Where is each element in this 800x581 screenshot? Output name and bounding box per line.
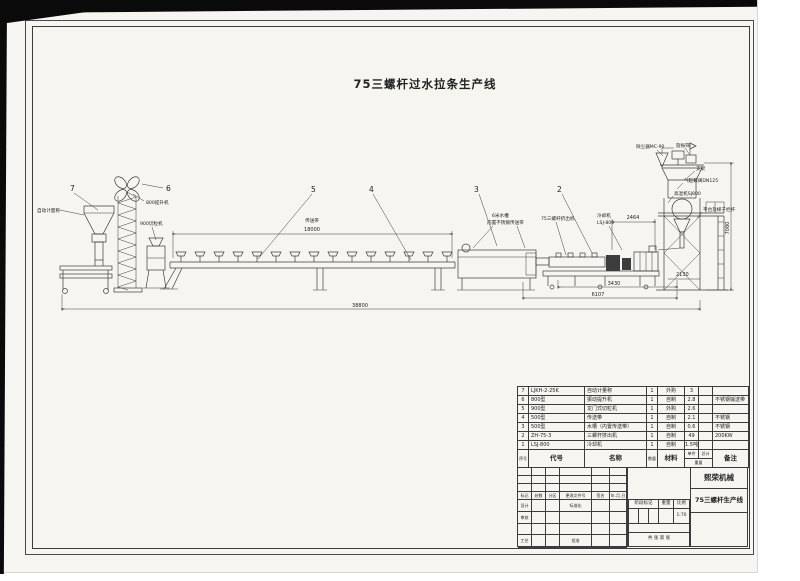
water-tank-figure (457, 244, 536, 290)
svg-text:7080: 7080 (725, 222, 731, 235)
balloon-3: 3 (474, 185, 479, 194)
balloon-2: 2 (557, 185, 562, 194)
stage-mark-label: 阶段标记 (629, 500, 659, 508)
bom-row: 6800型振动提升机1自制2.8不锈钢输送带 (518, 396, 749, 405)
drawing-title: 75三螺杆过水拉条生产线 (300, 76, 550, 92)
title-block-area: 7LJKH-2-25K自动计量称1外购3 6800型振动提升机1自制2.8不锈钢… (517, 386, 748, 547)
svg-text:2130: 2130 (676, 272, 689, 278)
scale-value: 1:70 (674, 509, 689, 523)
cooler-label-1: 冷却机 (597, 212, 611, 219)
cooler-figure (634, 246, 658, 271)
title-block: 标记 处数 分区 更改文件号 签名 年.月.日 设计 标准化 审核 工艺 批准 … (517, 467, 748, 547)
production-line-drawing: 自动计量称 7 6 800提升机 900切粒机 (30, 128, 745, 320)
elevator-label: 800提升机 (146, 199, 169, 206)
tank-label-1: 6米水槽 (492, 212, 509, 219)
scale-label: 比例 (674, 500, 689, 508)
rev-col-docno: 更改文件号 (560, 492, 592, 500)
svg-text:3430: 3430 (608, 281, 621, 287)
pelletizer-label: 900切粒机 (140, 220, 163, 227)
weigher-label: 自动计量称 (37, 207, 60, 214)
mixer-label: 高混机SJ800 (674, 190, 701, 197)
weigher-figure (60, 206, 114, 294)
rev-col-zone: 分区 (546, 492, 560, 500)
role-design: 设计 (518, 500, 532, 512)
company-name: 熙荣机械 (691, 468, 747, 489)
dust-collector-label: 除尘器MC-90 (636, 143, 665, 150)
bom-row: 5900型龙门式切粒机1外购2.6 (518, 405, 749, 414)
weight-label: 重量 (659, 500, 674, 508)
rev-col-mark: 标记 (518, 492, 532, 500)
bom-row: 2ZH-75-3三螺杆挤出机1自制49200KW (518, 432, 749, 441)
role-approve: 批准 (560, 535, 592, 548)
balloon-6: 6 (166, 184, 171, 193)
titleblock-grid: 标记 处数 分区 更改文件号 签名 年.月.日 设计 标准化 审核 工艺 批准 (517, 467, 628, 547)
rev-col-count: 处数 (532, 492, 546, 500)
dimension-cooler: 2464 (612, 215, 655, 250)
bracket-label: 支架 (696, 165, 706, 172)
cooler-label-2: LSJ-800 (597, 220, 614, 226)
svg-text:6107: 6107 (592, 292, 605, 298)
titleblock-middle: 阶段标记 重量 比例 1:70 共 张 第 张 (628, 499, 690, 547)
balloon-4: 4 (369, 185, 374, 194)
pelletizer-figure (143, 238, 170, 288)
valve-label: 气缸蝶阀DN125 (684, 177, 718, 184)
svg-text:38800: 38800 (352, 303, 368, 309)
bom-table: 7LJKH-2-25K自动计量称1外购3 6800型振动提升机1自制2.8不锈钢… (517, 386, 749, 468)
elevator-figure (113, 175, 142, 292)
screen-label: 旋振筛 (676, 142, 690, 149)
dimension-step: 2130 (668, 272, 700, 279)
balloon-5: 5 (311, 185, 316, 194)
bom-row: 7LJKH-2-25K自动计量称1外购3 (518, 387, 749, 396)
extruder-label: 75三螺杆挤出机 (541, 215, 575, 222)
titleblock-right: 熙荣机械 75三螺杆生产线 (690, 467, 748, 547)
role-process: 工艺 (518, 535, 532, 548)
balloon-7: 7 (70, 184, 75, 193)
conveyor-figure (160, 252, 455, 290)
role-check: 审核 (518, 512, 532, 524)
bom-row: 1LSJ-800冷却机1自制1.5吨 (518, 441, 749, 450)
drawing-no-cell (691, 513, 747, 546)
bom-header-row: 序号 代号 名称 数量 材料 单件 总计 备注 (518, 450, 749, 459)
platform-label: 平台及梯子栏杆 (703, 206, 736, 213)
rev-col-date: 年.月.日 (610, 492, 627, 500)
belt-label: 传送带 (305, 217, 319, 224)
tank-label-2: 内置不锈钢传送带 (487, 219, 524, 226)
dimension-extruder: 3430 (558, 280, 677, 289)
bom-row: 3500型水槽（内置传送带）1自制0.6不锈钢 (518, 423, 749, 432)
svg-text:18000: 18000 (304, 227, 320, 233)
svg-text:2464: 2464 (627, 215, 640, 221)
rev-col-sign: 签名 (592, 492, 610, 500)
scanned-engineering-drawing: { "title": "75三螺杆过水拉条生产线", "drawing": { … (0, 0, 800, 581)
bom-row: 4500型传送带1自制2.1不锈钢 (518, 414, 749, 423)
mixer-tower-figure (656, 143, 728, 290)
role-standard: 标准化 (560, 500, 592, 512)
product-name: 75三螺杆生产线 (691, 489, 747, 513)
sheet-count: 共 张 第 张 (629, 533, 689, 546)
